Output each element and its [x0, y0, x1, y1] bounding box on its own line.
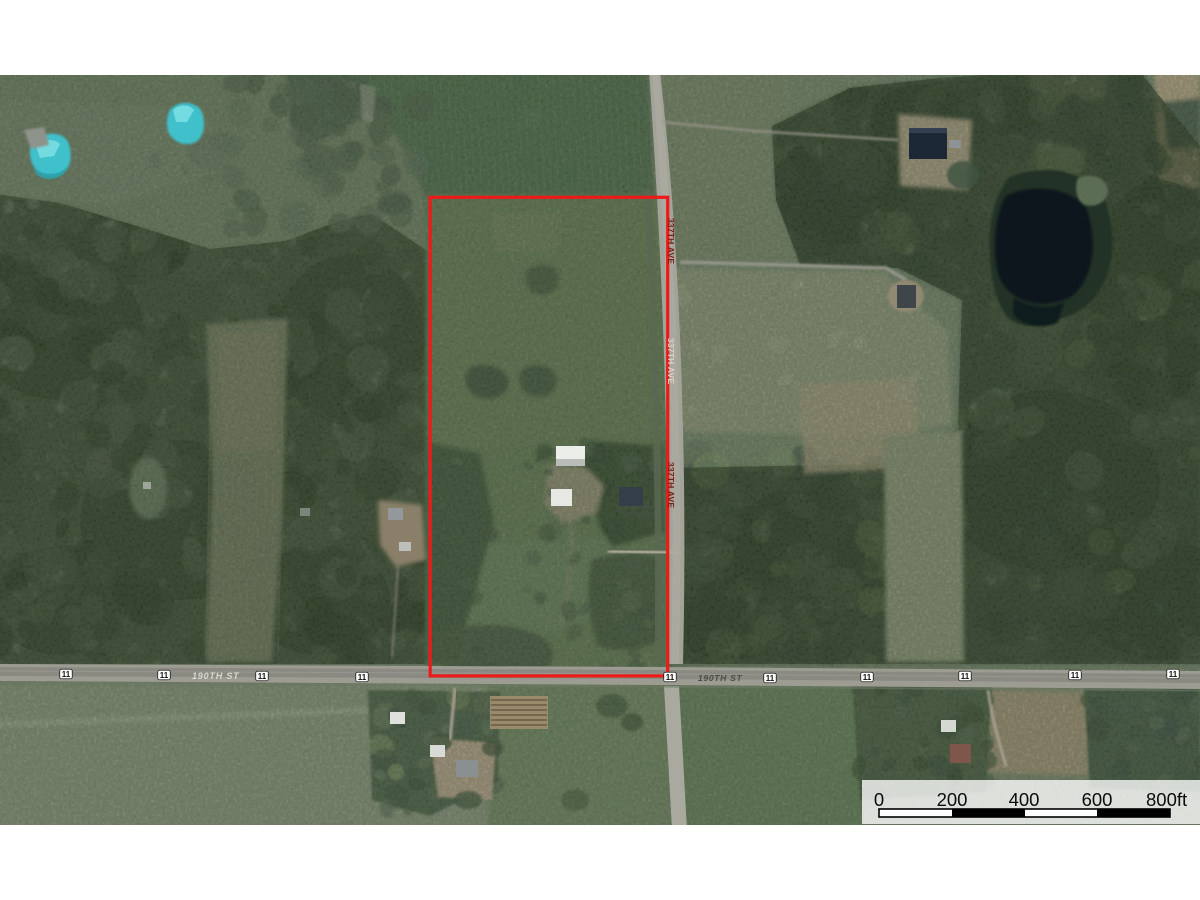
svg-text:400: 400 [1009, 789, 1040, 810]
svg-text:190TH ST: 190TH ST [698, 673, 742, 683]
svg-text:11: 11 [1071, 671, 1080, 680]
svg-text:11: 11 [258, 672, 267, 681]
svg-text:800ft: 800ft [1146, 789, 1187, 810]
svg-text:11: 11 [863, 673, 872, 682]
svg-text:11: 11 [1169, 670, 1178, 679]
svg-text:337TH AVE: 337TH AVE [666, 218, 676, 264]
svg-text:11: 11 [766, 674, 775, 683]
svg-text:190TH ST: 190TH ST [192, 671, 240, 681]
svg-text:0: 0 [874, 789, 884, 810]
svg-text:337TH AVE: 337TH AVE [666, 338, 676, 384]
svg-text:11: 11 [666, 673, 675, 682]
svg-text:600: 600 [1082, 789, 1113, 810]
svg-text:200: 200 [937, 789, 968, 810]
svg-text:11: 11 [62, 670, 71, 679]
svg-text:11: 11 [358, 673, 367, 682]
svg-text:11: 11 [160, 671, 169, 680]
svg-text:337TH AVE: 337TH AVE [666, 462, 676, 508]
svg-text:11: 11 [961, 672, 970, 681]
